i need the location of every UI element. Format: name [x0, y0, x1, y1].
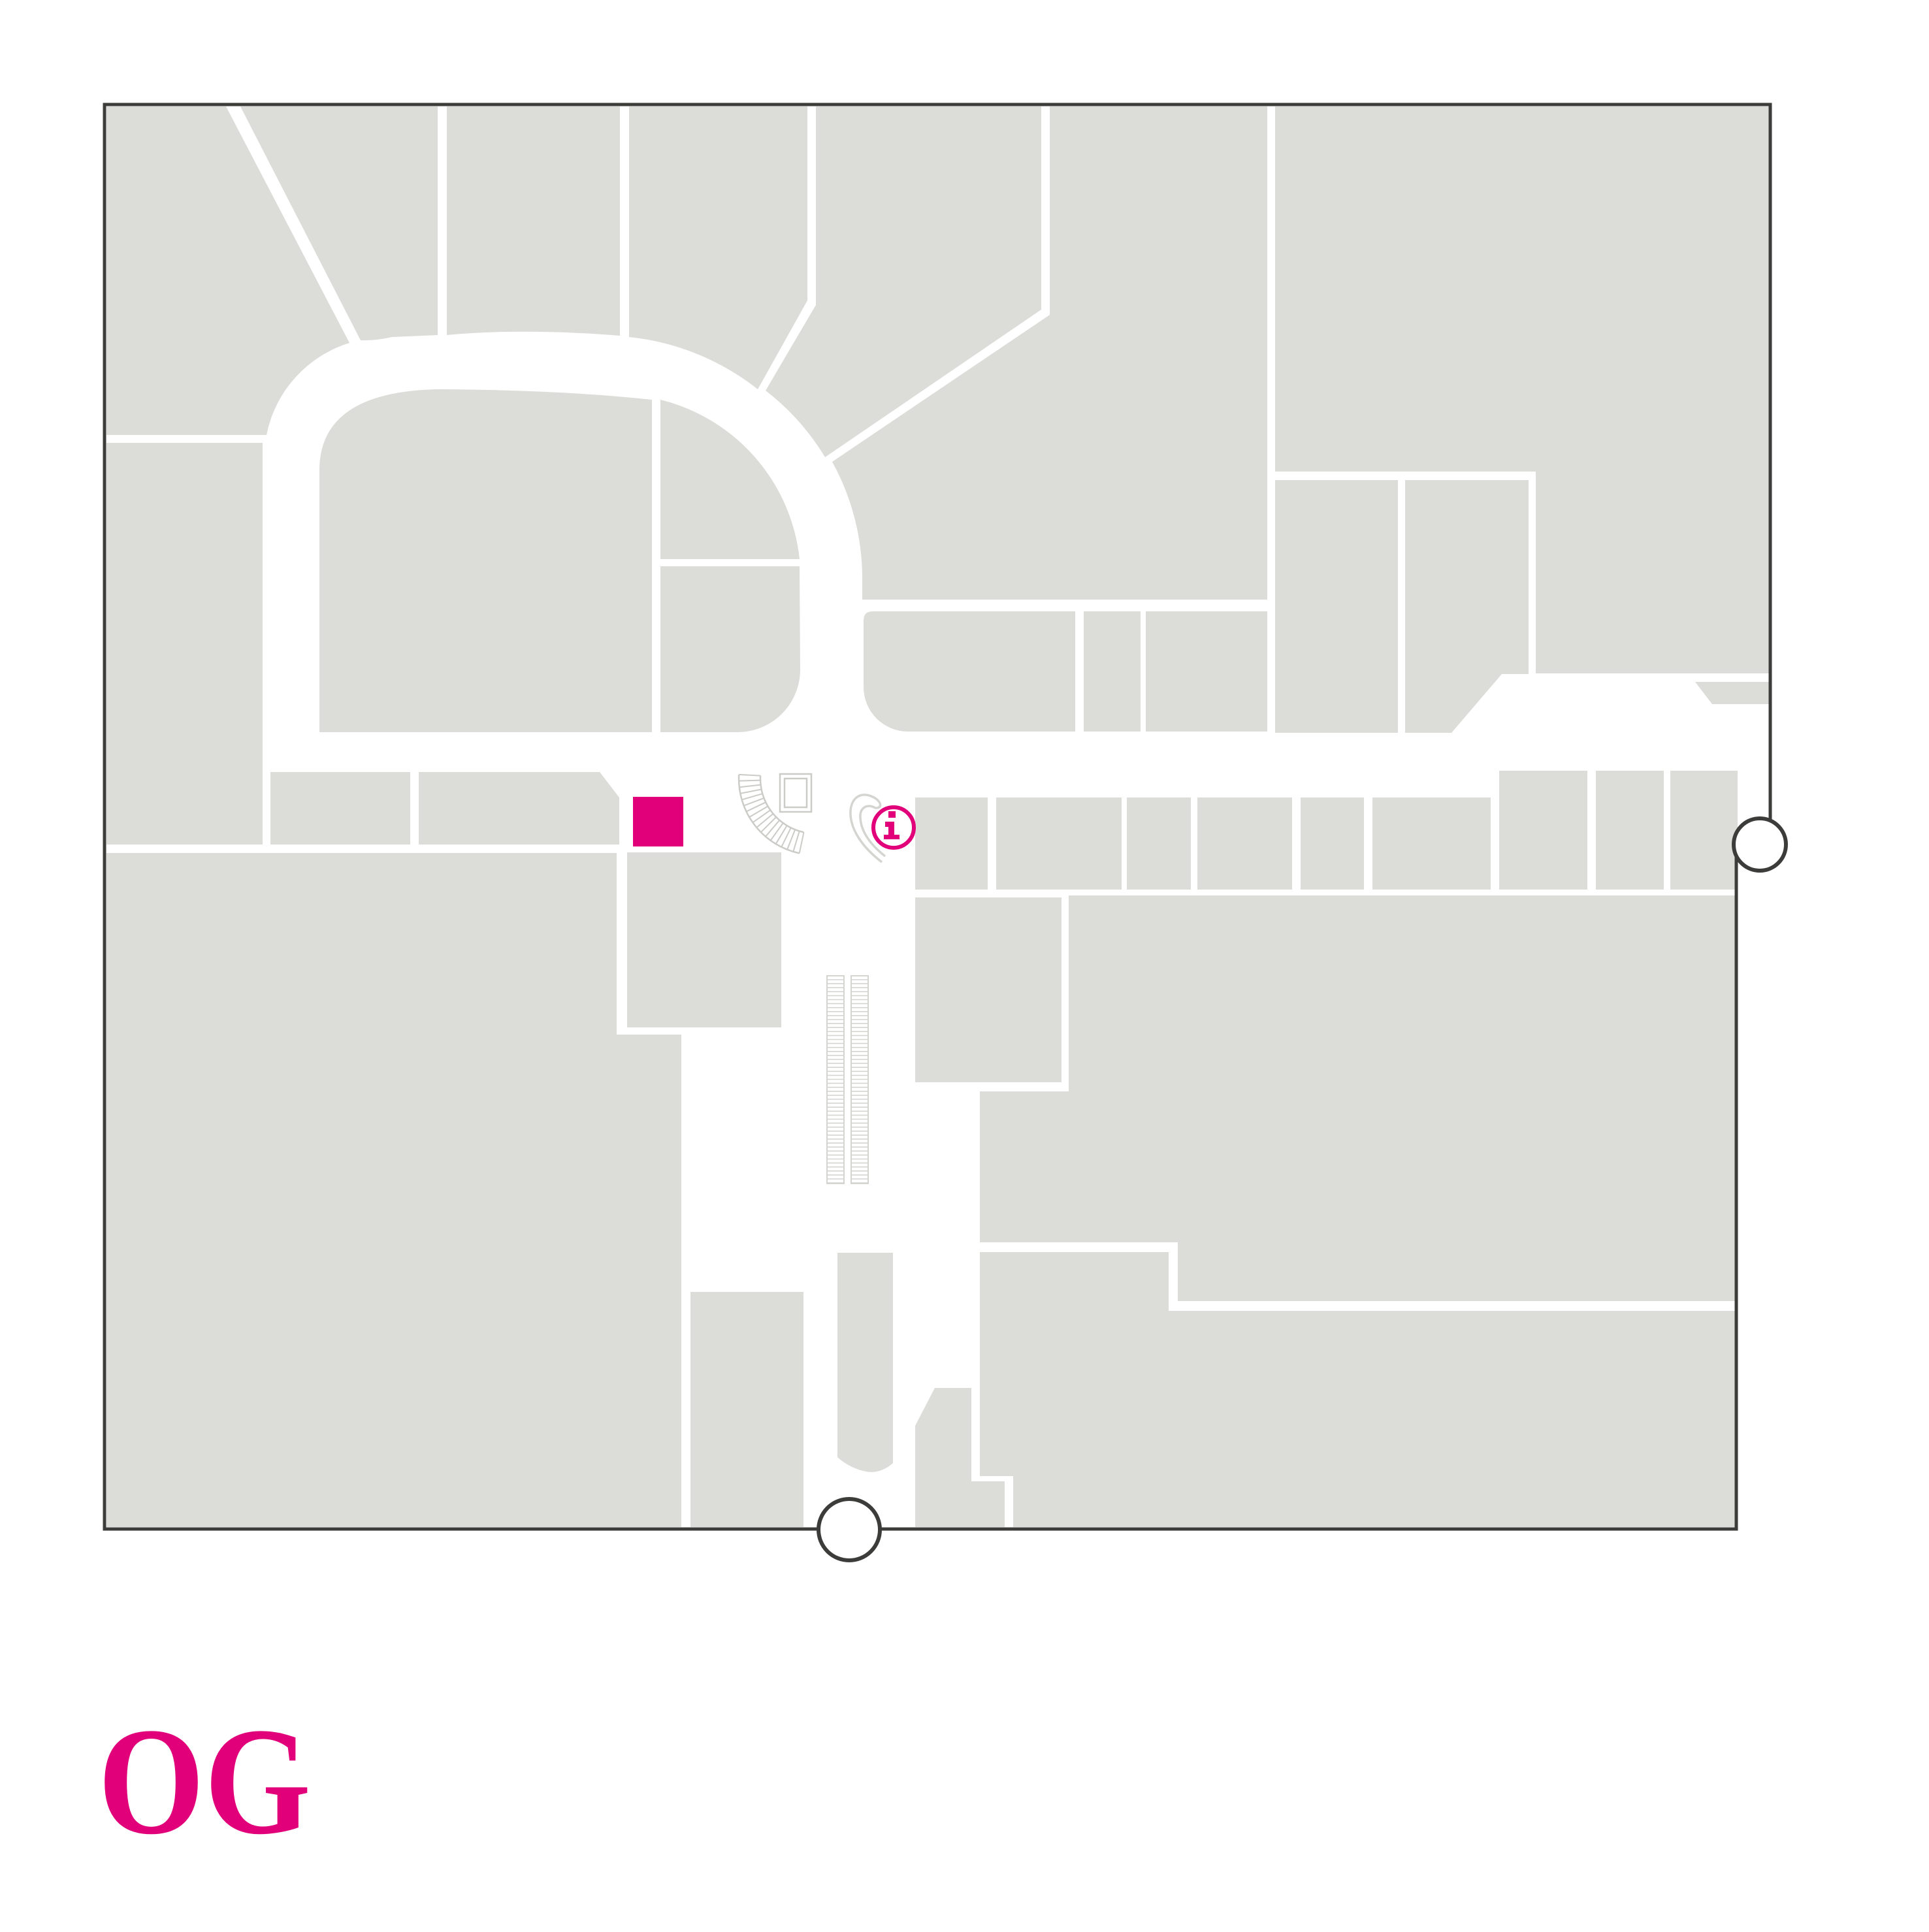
svg-text:OG: OG [98, 1696, 311, 1866]
